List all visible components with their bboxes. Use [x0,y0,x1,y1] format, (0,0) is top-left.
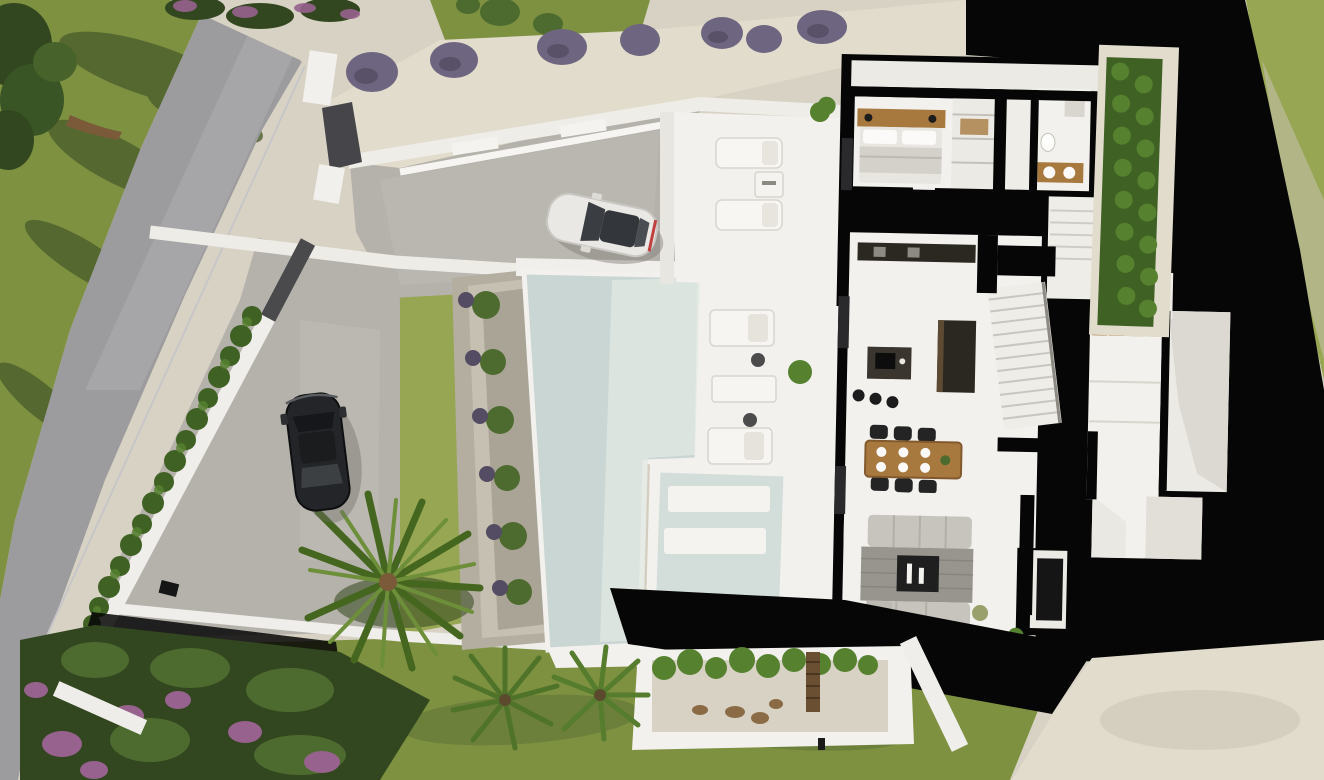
pillow-2 [902,130,936,145]
garage-room [1091,495,1202,559]
toilet [1041,133,1055,151]
upper-terrace [660,102,842,286]
black-car-roof [298,430,337,464]
deck-plant [788,360,812,384]
daybed-2 [708,428,772,464]
kitchen-island [867,347,912,380]
spa-bench-1 [668,486,770,512]
duvet [859,146,942,174]
black-car-mirror-l [280,413,288,425]
timber-gate [806,652,820,712]
sun-lounger-1 [716,138,782,168]
spa-bench-2 [664,528,766,554]
deck-planter [712,376,776,402]
black-car-mirror-r [339,406,347,418]
bathroom-top [1035,88,1091,191]
terrace-wing-wall [660,112,674,284]
aerial-render [0,0,1324,780]
deck-side-table-2 [743,413,757,427]
house-hedge [1089,45,1179,338]
closet-room [1086,309,1162,500]
deck-side-table-1 [751,353,765,367]
induction-hob [875,353,895,369]
sun-lounger-2 [716,200,782,230]
path-light [818,738,825,750]
courtyard [632,640,960,750]
hall-top [1003,94,1033,190]
wardrobe [951,90,997,189]
daybed-1 [710,310,774,346]
balcony-band [851,60,1103,91]
tv-panel [1036,558,1063,621]
pillow-1 [863,129,897,144]
scene-svg [0,0,1324,780]
fireplace [896,555,939,592]
